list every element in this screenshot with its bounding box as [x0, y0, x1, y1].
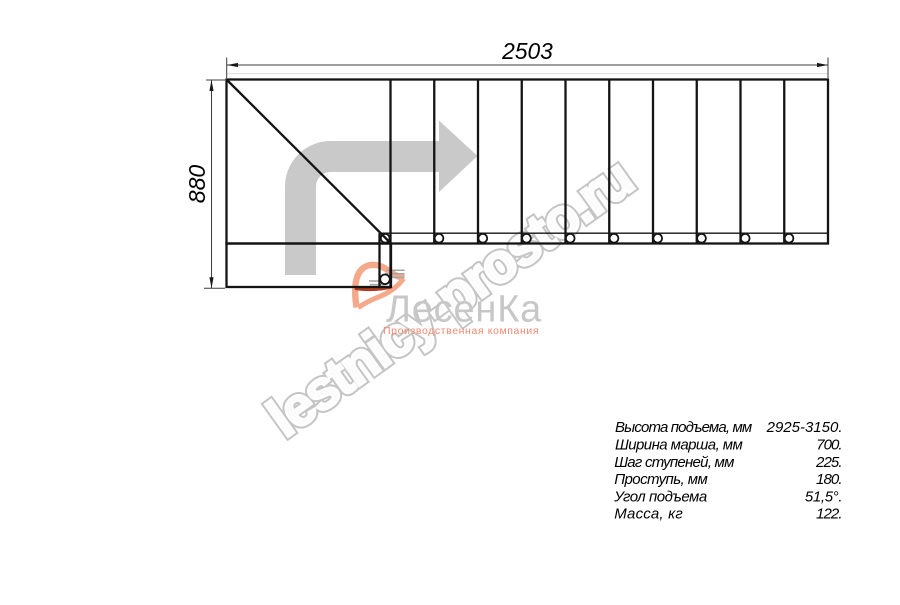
svg-text:180.: 180.: [816, 471, 843, 488]
svg-text:Производственная компания: Производственная компания: [383, 325, 539, 337]
svg-text:Проступь, мм: Проступь, мм: [614, 471, 708, 488]
svg-text:Шаг ступеней, мм: Шаг ступеней, мм: [614, 454, 734, 471]
svg-text:700.: 700.: [816, 437, 842, 454]
svg-text:Ширина марша, мм: Ширина марша, мм: [615, 437, 743, 454]
svg-text:Угол подъема: Угол подъема: [613, 488, 707, 505]
svg-text:Высота подъема, мм: Высота подъема, мм: [615, 419, 752, 436]
svg-text:880: 880: [184, 165, 210, 204]
svg-text:Масса, кг: Масса, кг: [614, 506, 683, 523]
svg-text:51,5°.: 51,5°.: [805, 488, 843, 505]
svg-text:2503: 2503: [501, 38, 553, 64]
svg-text:225.: 225.: [815, 454, 843, 471]
svg-text:122.: 122.: [816, 506, 843, 523]
svg-text:2925-3150.: 2925-3150.: [766, 419, 843, 436]
